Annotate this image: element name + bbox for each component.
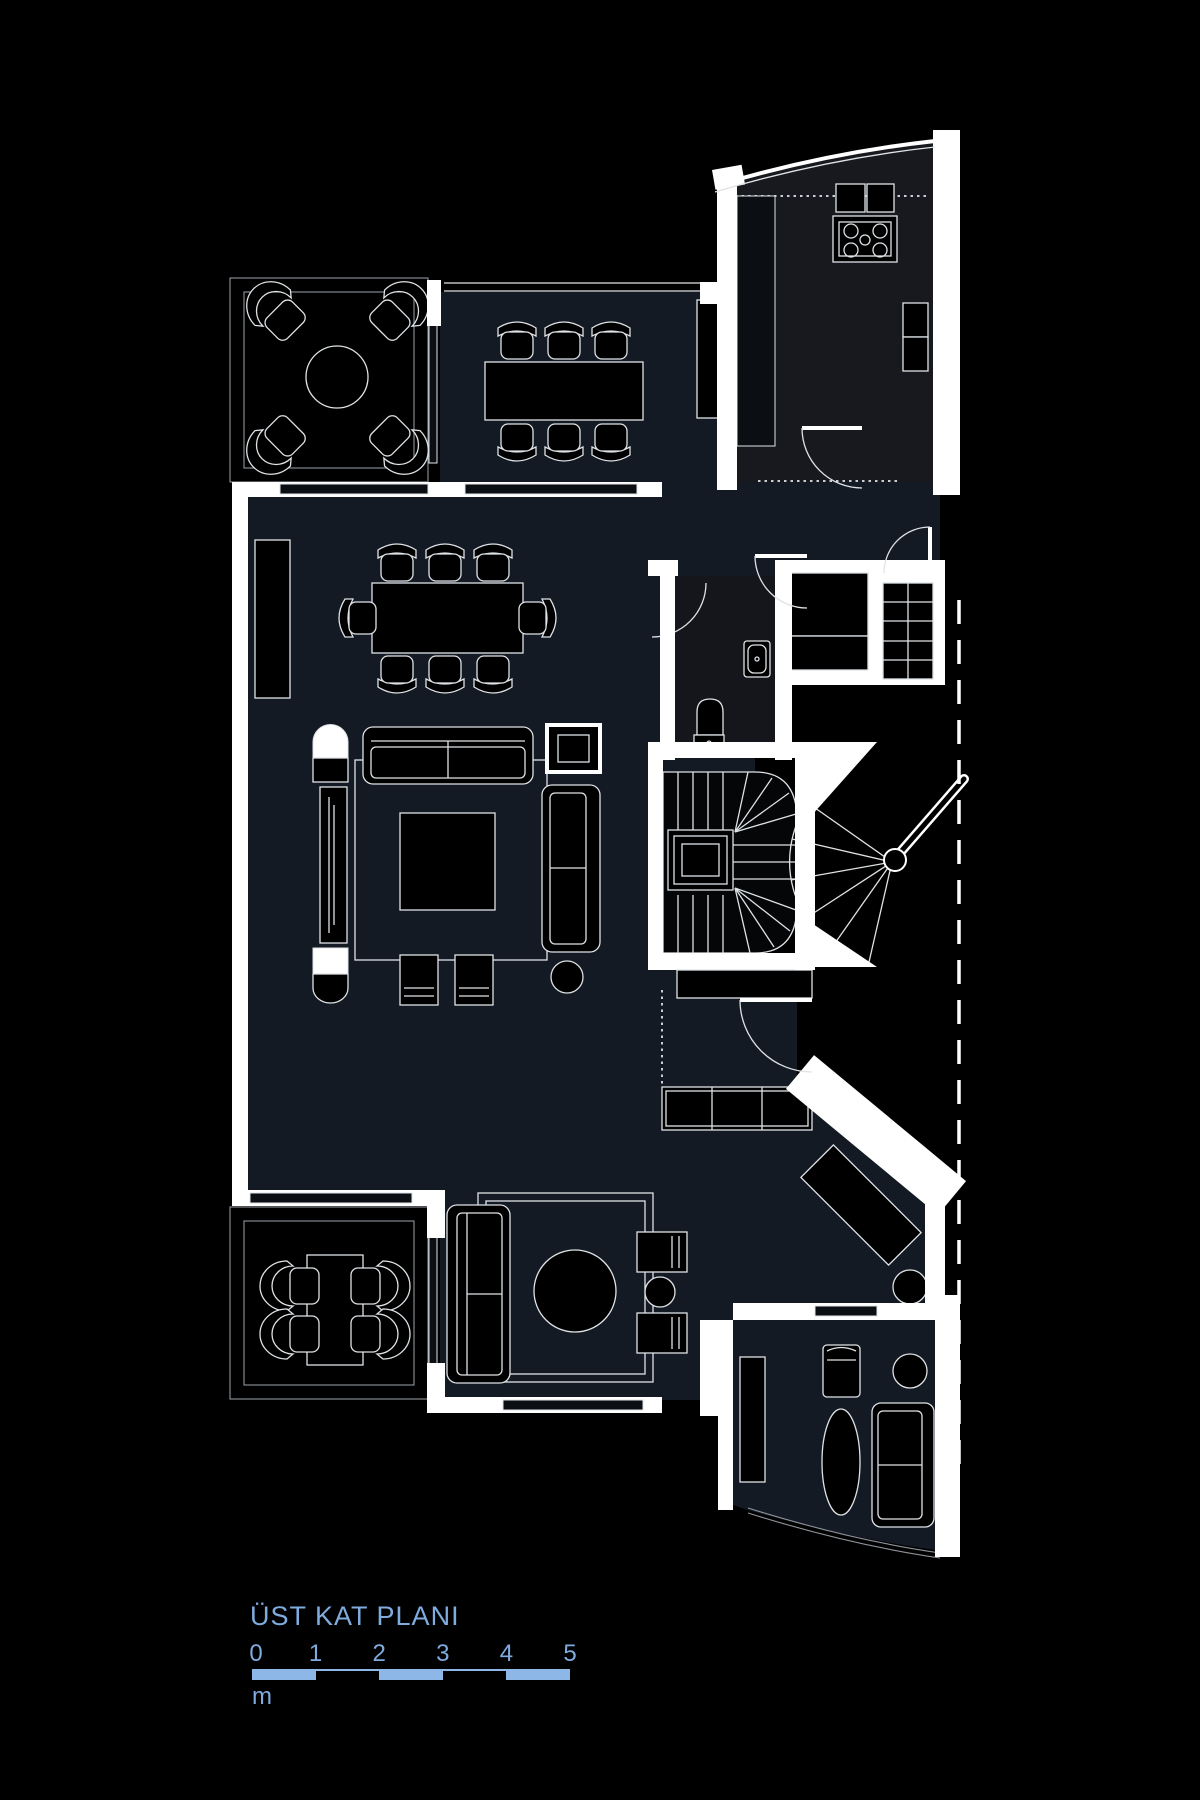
window [429, 1225, 437, 1367]
scale-bar-segments [252, 1669, 570, 1680]
sofa-tv [447, 1205, 510, 1383]
kitchen-cabinet [836, 184, 865, 212]
floor-plan-page: { "title": { "label": "ÜST KAT PLANI" },… [0, 0, 1200, 1800]
round-side-table [551, 961, 583, 993]
scale-segment-open [316, 1669, 380, 1682]
side-table-tv [547, 725, 600, 772]
stairwell [663, 772, 797, 953]
scale-tick-labels: 0 1 2 3 4 5 [252, 1640, 570, 1667]
coffee-table [400, 813, 495, 910]
console-left [320, 787, 347, 943]
kitchen-cabinet [903, 303, 928, 337]
sideboard [255, 540, 290, 698]
scale-tick: 0 [249, 1640, 262, 1668]
round-table [306, 346, 368, 408]
scale-unit-label: m [252, 1683, 570, 1711]
handrail [884, 779, 964, 871]
floor-plan-svg [0, 0, 1200, 1800]
round-side-table [893, 1270, 927, 1304]
stair-landing [668, 830, 733, 890]
stool [400, 955, 438, 1005]
armchair [823, 1345, 860, 1397]
sofa-right [542, 785, 600, 952]
closet-group [790, 573, 933, 679]
round-side-table [645, 1277, 675, 1307]
kitchen-counter [737, 196, 775, 446]
stool [455, 955, 493, 1005]
kitchen-cabinet [867, 184, 894, 212]
scale-tick: 5 [563, 1640, 576, 1668]
cabinet [697, 300, 718, 418]
round-side-table [893, 1354, 927, 1388]
washbasin [744, 641, 770, 677]
scale-segment-filled [252, 1669, 316, 1680]
stove [833, 216, 897, 262]
window [429, 323, 437, 463]
plan-title: ÜST KAT PLANI [250, 1601, 460, 1632]
scale-tick: 1 [309, 1640, 322, 1668]
oval-table [822, 1409, 860, 1515]
ottoman [534, 1250, 616, 1332]
low-cabinet [662, 1087, 812, 1130]
window [503, 1400, 643, 1410]
armchair [637, 1232, 687, 1272]
lounge-chair [313, 948, 348, 1003]
scale-bar: 0 1 2 3 4 5 m [252, 1640, 570, 1711]
window [465, 484, 637, 494]
armchair [637, 1313, 687, 1353]
kitchen-cabinet [903, 337, 928, 371]
terrace-upper-left [230, 271, 439, 485]
loveseat [872, 1403, 934, 1527]
terrace-lower-left [230, 1207, 437, 1399]
window [250, 1193, 412, 1203]
sofa-top [363, 727, 533, 784]
window [280, 484, 428, 494]
scale-tick: 3 [436, 1640, 449, 1668]
scale-tick: 2 [373, 1640, 386, 1668]
cabinet [740, 1357, 765, 1482]
scale-segment-filled [506, 1669, 570, 1680]
scale-tick: 4 [500, 1640, 513, 1668]
center-table [372, 583, 523, 653]
dining-table [485, 362, 643, 420]
scale-segment-open [443, 1669, 507, 1682]
scale-segment-filled [379, 1669, 443, 1680]
closet-grid [883, 583, 933, 679]
lounge-chair [313, 725, 348, 783]
title-block: ÜST KAT PLANI [250, 1601, 460, 1632]
